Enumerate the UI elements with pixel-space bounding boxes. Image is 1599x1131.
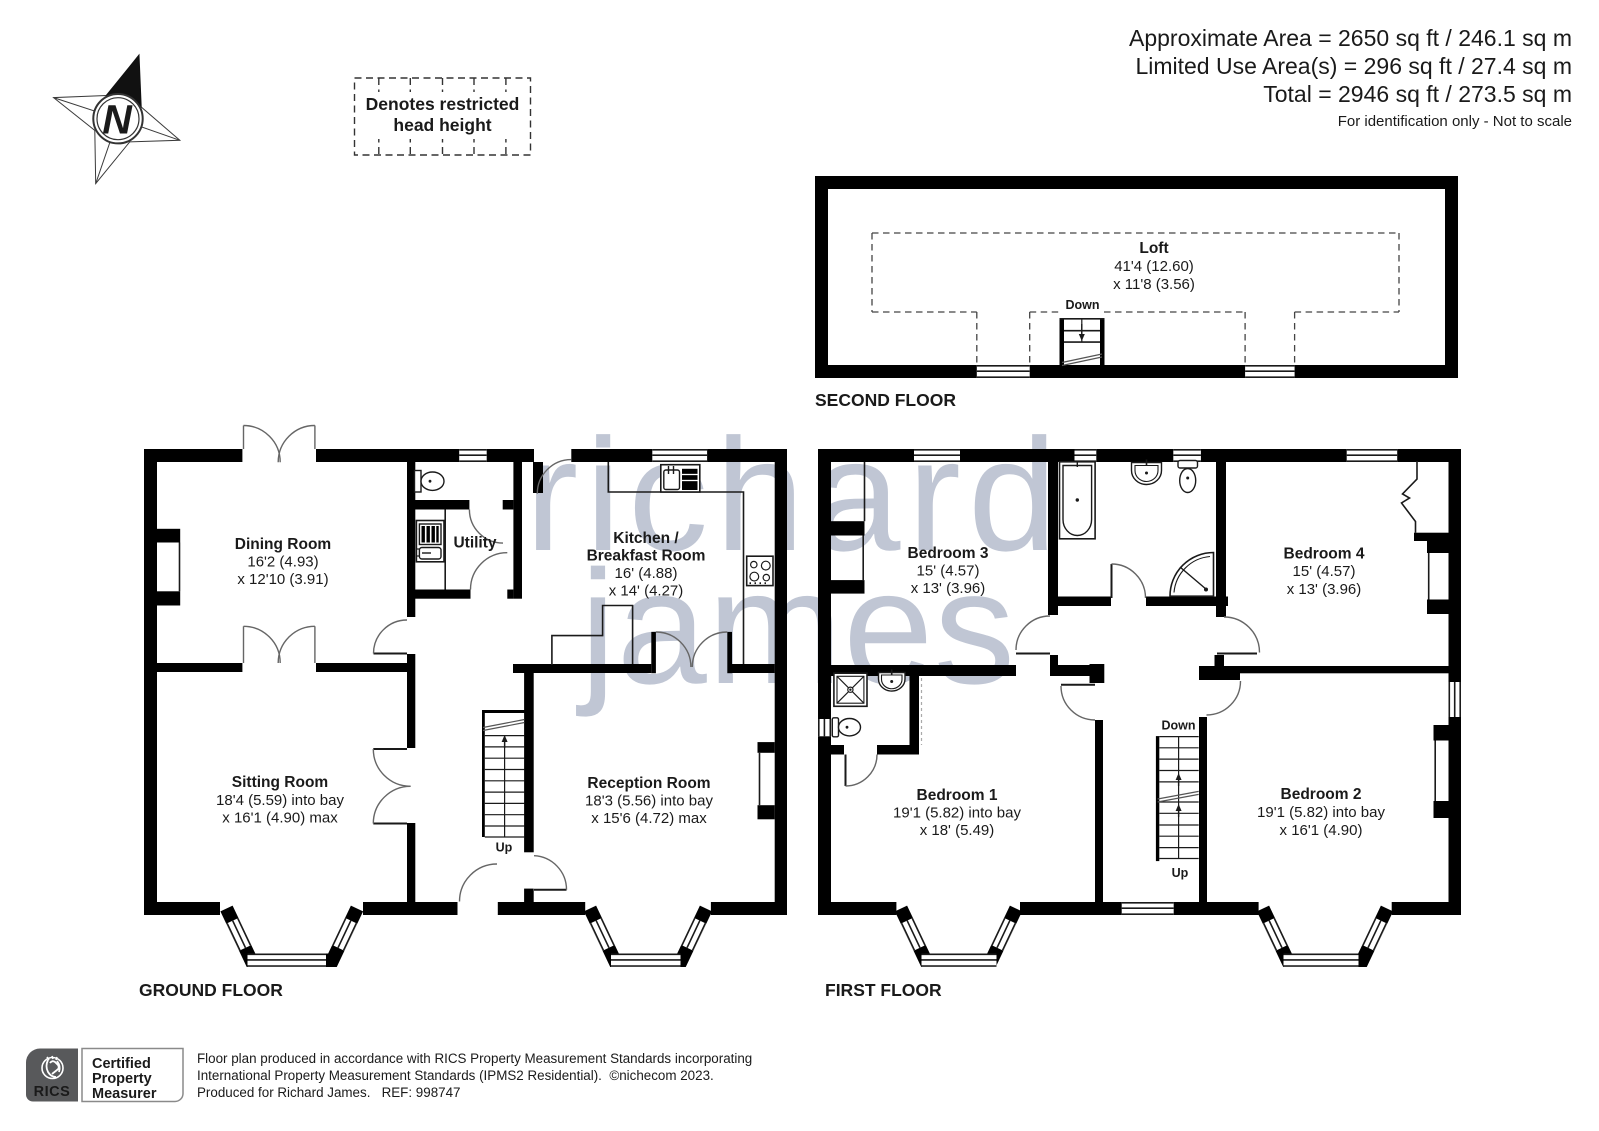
svg-text:41'4 (12.60): 41'4 (12.60): [1114, 258, 1194, 275]
svg-text:SECOND FLOOR: SECOND FLOOR: [815, 390, 956, 410]
svg-text:Down: Down: [1161, 719, 1195, 733]
svg-text:Bedroom 3: Bedroom 3: [908, 545, 989, 562]
svg-text:16' (4.88): 16' (4.88): [615, 565, 678, 582]
svg-text:x 13' (3.96): x 13' (3.96): [911, 580, 986, 597]
svg-text:x 11'8 (3.56): x 11'8 (3.56): [1113, 276, 1195, 293]
svg-text:For identification only - Not: For identification only - Not to scale: [1338, 113, 1572, 130]
svg-text:Reception Room: Reception Room: [587, 775, 710, 792]
svg-text:head height: head height: [393, 115, 491, 135]
svg-text:x 16'1 (4.90): x 16'1 (4.90): [1280, 822, 1363, 839]
svg-text:Breakfast Room: Breakfast Room: [587, 548, 706, 565]
svg-text:FIRST FLOOR: FIRST FLOOR: [825, 980, 942, 1000]
svg-text:Utility: Utility: [453, 535, 496, 552]
svg-text:19'1 (5.82) into bay: 19'1 (5.82) into bay: [1257, 804, 1385, 821]
svg-text:Denotes restricted: Denotes restricted: [366, 94, 520, 114]
svg-text:Up: Up: [1172, 866, 1189, 880]
svg-text:N: N: [102, 97, 133, 143]
svg-text:Loft: Loft: [1139, 240, 1168, 257]
svg-text:x 15'6 (4.72) max: x 15'6 (4.72) max: [591, 810, 707, 827]
svg-text:Sitting Room: Sitting Room: [232, 774, 328, 791]
svg-text:19'1 (5.82) into bay: 19'1 (5.82) into bay: [893, 805, 1021, 822]
svg-text:GROUND FLOOR: GROUND FLOOR: [139, 980, 283, 1000]
svg-text:Kitchen /: Kitchen /: [613, 530, 679, 547]
svg-text:Limited Use Area(s) = 296 sq f: Limited Use Area(s) = 296 sq ft / 27.4 s…: [1135, 53, 1572, 79]
svg-text:Dining Room: Dining Room: [235, 536, 331, 553]
svg-text:Approximate Area = 2650 sq ft: Approximate Area = 2650 sq ft / 246.1 sq…: [1129, 25, 1572, 51]
svg-text:Bedroom 4: Bedroom 4: [1284, 546, 1365, 563]
svg-text:15' (4.57): 15' (4.57): [1293, 563, 1356, 580]
svg-text:Down: Down: [1065, 298, 1099, 312]
svg-text:15' (4.57): 15' (4.57): [917, 563, 980, 580]
svg-text:Measurer: Measurer: [92, 1086, 157, 1102]
svg-text:International Property Measure: International Property Measurement Stand…: [197, 1068, 714, 1083]
svg-text:Total = 2946 sq ft / 273.5 sq: Total = 2946 sq ft / 273.5 sq m: [1263, 81, 1572, 107]
svg-text:x 18' (5.49): x 18' (5.49): [920, 822, 995, 839]
svg-text:18'3 (5.56) into bay: 18'3 (5.56) into bay: [585, 793, 713, 810]
svg-text:Property: Property: [92, 1071, 152, 1087]
svg-text:x 14' (4.27): x 14' (4.27): [609, 583, 684, 600]
svg-text:Certified: Certified: [92, 1056, 151, 1072]
svg-text:Bedroom 1: Bedroom 1: [917, 787, 998, 804]
svg-text:Up: Up: [496, 841, 513, 855]
svg-text:RICS: RICS: [34, 1084, 71, 1100]
svg-text:Bedroom 2: Bedroom 2: [1281, 786, 1362, 803]
svg-text:Produced for Richard James.: Produced for Richard James. REF: 998747: [197, 1085, 460, 1100]
svg-text:Floor plan produced in accorda: Floor plan produced in accordance with R…: [197, 1051, 752, 1066]
svg-text:16'2 (4.93): 16'2 (4.93): [247, 554, 318, 571]
svg-text:18'4 (5.59) into bay: 18'4 (5.59) into bay: [216, 792, 344, 809]
svg-text:x 16'1 (4.90) max: x 16'1 (4.90) max: [222, 810, 338, 827]
svg-text:x 12'10 (3.91): x 12'10 (3.91): [237, 571, 328, 588]
svg-text:x 13' (3.96): x 13' (3.96): [1287, 581, 1362, 598]
